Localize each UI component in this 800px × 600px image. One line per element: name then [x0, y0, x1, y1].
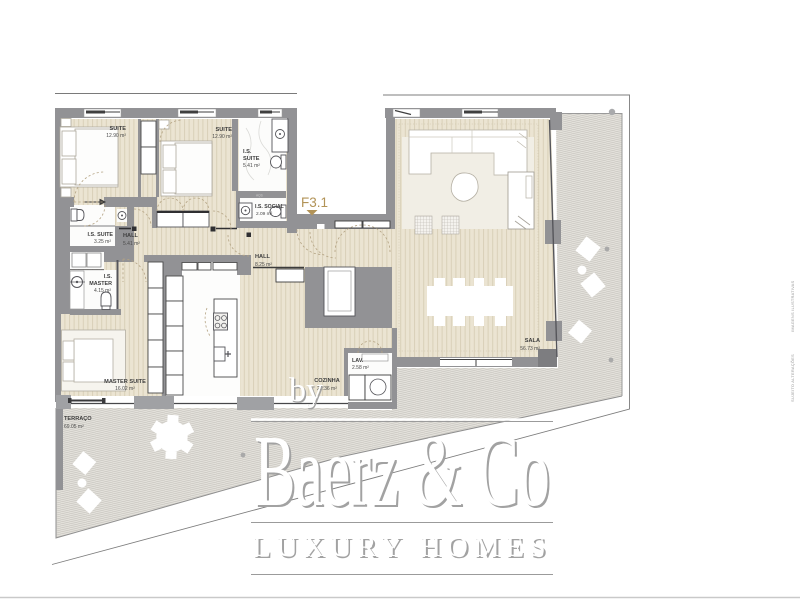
svg-text:SUITE: SUITE	[243, 156, 260, 162]
svg-text:LUXURY HOMES: LUXURY HOMES	[253, 531, 552, 563]
svg-text:2.58 m²: 2.58 m²	[352, 365, 369, 371]
svg-text:I.S.: I.S.	[104, 274, 113, 280]
svg-text:I.S.: I.S.	[243, 149, 252, 155]
svg-text:5.41 m²: 5.41 m²	[123, 241, 140, 247]
svg-text:12.90 m²: 12.90 m²	[106, 133, 126, 139]
svg-text:SUITE: SUITE	[110, 126, 127, 132]
svg-text:TERRAÇO: TERRAÇO	[64, 416, 92, 422]
svg-text:AQS: AQS	[256, 194, 263, 198]
svg-text:Baerz & Co: Baerz & Co	[254, 416, 550, 528]
svg-text:SALA: SALA	[525, 338, 540, 344]
svg-text:HALL: HALL	[255, 254, 270, 260]
svg-text:SUITE: SUITE	[216, 127, 233, 133]
svg-text:MASTER SUITE: MASTER SUITE	[104, 379, 146, 385]
svg-text:IMAGENS ILUSTRATIVAS: IMAGENS ILUSTRATIVAS	[790, 280, 795, 332]
svg-text:56.73 m²: 56.73 m²	[520, 346, 540, 352]
svg-text:8.25 m²: 8.25 m²	[255, 262, 272, 268]
svg-text:by: by	[289, 372, 323, 409]
svg-text:SUJEITO ALTERAÇÕES: SUJEITO ALTERAÇÕES	[790, 354, 795, 402]
svg-text:3.25 m²: 3.25 m²	[94, 239, 111, 245]
svg-text:4.15 m²: 4.15 m²	[94, 288, 111, 294]
svg-text:5.41 m²: 5.41 m²	[243, 163, 260, 169]
svg-text:12.90 m²: 12.90 m²	[212, 134, 232, 140]
svg-text:2.09 m²: 2.09 m²	[256, 211, 273, 217]
svg-text:I.S. SOCIAL: I.S. SOCIAL	[255, 204, 285, 210]
svg-text:HALL: HALL	[123, 233, 138, 239]
svg-text:69.05 m²: 69.05 m²	[64, 424, 84, 430]
svg-text:MASTER: MASTER	[89, 281, 112, 287]
svg-text:LAV.: LAV.	[352, 358, 364, 364]
svg-text:F3.1: F3.1	[301, 195, 328, 210]
svg-text:16.02 m²: 16.02 m²	[115, 386, 135, 392]
svg-text:I.S. SUITE: I.S. SUITE	[88, 232, 114, 238]
